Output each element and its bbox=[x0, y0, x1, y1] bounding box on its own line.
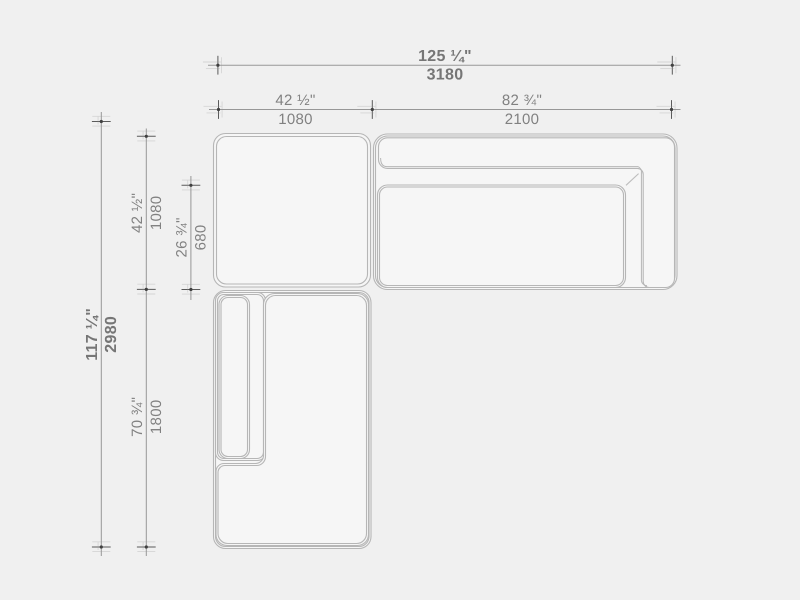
svg-text:1080: 1080 bbox=[148, 196, 165, 231]
svg-text:70 ¾": 70 ¾" bbox=[129, 397, 146, 437]
svg-text:117 ¼": 117 ¼" bbox=[84, 308, 101, 361]
svg-text:680: 680 bbox=[193, 224, 210, 250]
svg-text:125 ¼": 125 ¼" bbox=[418, 48, 472, 65]
svg-text:26 ¾": 26 ¾" bbox=[173, 217, 190, 257]
svg-text:82 ¾": 82 ¾" bbox=[502, 92, 542, 109]
svg-text:3180: 3180 bbox=[427, 67, 464, 84]
svg-text:42 ½": 42 ½" bbox=[129, 193, 146, 233]
svg-text:2980: 2980 bbox=[103, 316, 120, 353]
svg-text:1800: 1800 bbox=[148, 400, 165, 435]
svg-text:1080: 1080 bbox=[278, 111, 313, 128]
svg-text:2100: 2100 bbox=[505, 111, 540, 128]
svg-text:42 ½": 42 ½" bbox=[275, 92, 315, 109]
